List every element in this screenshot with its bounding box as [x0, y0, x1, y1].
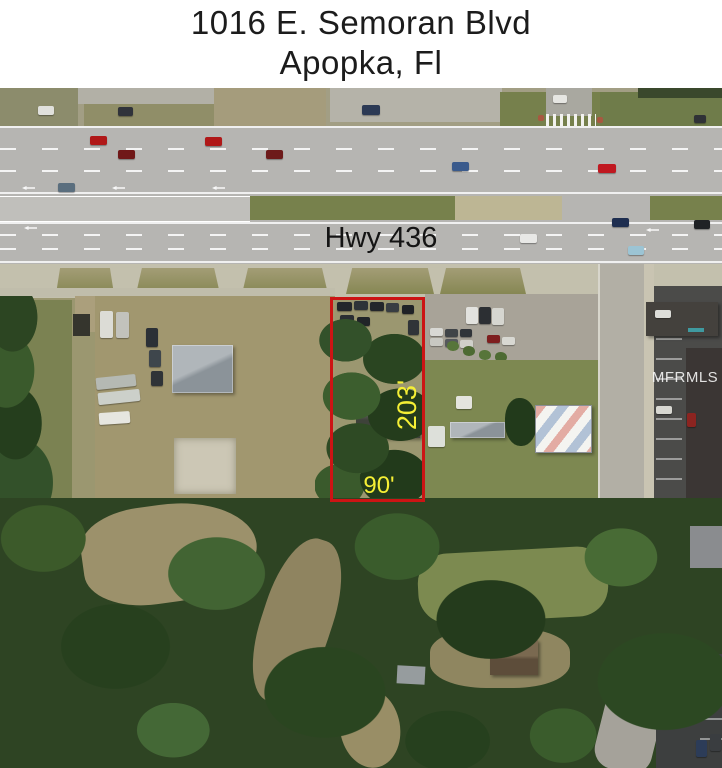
lane-arrow	[24, 226, 37, 230]
car	[520, 234, 537, 243]
dirt-patch	[214, 88, 326, 126]
mls-watermark: MFRMLS	[648, 369, 722, 386]
lane-arrow	[646, 228, 659, 232]
palm-tree	[463, 346, 475, 356]
concrete-median	[0, 196, 250, 222]
car	[118, 107, 133, 116]
parking-stripes	[656, 328, 682, 518]
car	[58, 183, 75, 192]
car	[266, 150, 283, 159]
car	[118, 150, 135, 159]
car	[460, 329, 472, 337]
car	[687, 413, 696, 427]
box-truck	[116, 312, 129, 338]
tarp	[73, 314, 90, 336]
forest-canopy	[0, 498, 722, 768]
car	[362, 105, 380, 115]
pickup-truck	[456, 396, 472, 409]
lane-arrow	[22, 186, 35, 190]
lane-line	[0, 148, 722, 150]
driveway	[330, 88, 502, 122]
car	[598, 164, 616, 173]
car	[38, 106, 54, 115]
tree-line-west	[0, 296, 62, 508]
grass-island	[440, 268, 526, 294]
curb-ramp	[597, 117, 603, 123]
tree	[505, 398, 537, 446]
metal-roof-building	[172, 345, 233, 393]
car	[502, 337, 515, 345]
car	[430, 338, 443, 346]
car	[151, 371, 163, 386]
car	[655, 310, 671, 318]
palm-tree	[447, 341, 459, 351]
grass-patch	[84, 104, 214, 126]
building-roof	[646, 302, 718, 336]
lane-arrow	[212, 186, 225, 190]
carport	[450, 422, 505, 438]
lane-line	[0, 192, 722, 194]
van	[99, 411, 131, 425]
curb-ramp	[538, 115, 544, 121]
box-truck	[492, 308, 504, 325]
car	[445, 329, 458, 337]
property-address-line2: Apopka, Fl	[280, 43, 443, 83]
car	[452, 162, 469, 171]
parcel-width-label: 90'	[350, 472, 408, 500]
car	[553, 95, 567, 103]
car	[149, 350, 161, 367]
highway: Hwy 436	[0, 126, 722, 264]
parcel-depth-label: 203'	[378, 376, 436, 434]
grass-median	[650, 196, 722, 220]
car	[612, 218, 629, 227]
lane-line	[0, 126, 722, 128]
teal-awning	[688, 328, 704, 332]
car	[694, 115, 706, 123]
palm-tree	[479, 350, 491, 360]
car	[628, 246, 644, 255]
sidewalk	[644, 264, 654, 510]
driveway	[78, 88, 218, 104]
listing-photo-page: 1016 E. Semoran Blvd Apopka, Fl	[0, 0, 722, 768]
highway-label: Hwy 436	[306, 222, 456, 260]
concrete-pad	[174, 438, 236, 494]
grass-island	[346, 268, 434, 294]
flag-roof-building	[535, 405, 592, 453]
car	[146, 328, 158, 347]
box-truck	[466, 307, 478, 324]
turn-lane-taper	[455, 196, 562, 220]
box-truck	[479, 307, 491, 324]
forest	[0, 498, 722, 768]
lane-line	[0, 261, 722, 263]
title-block: 1016 E. Semoran Blvd Apopka, Fl	[0, 0, 722, 88]
property-address-line1: 1016 E. Semoran Blvd	[191, 3, 531, 43]
car	[694, 220, 710, 229]
car	[430, 328, 443, 336]
hedge	[638, 88, 722, 98]
car	[487, 335, 500, 343]
median-crossing	[562, 196, 650, 220]
car	[656, 406, 672, 414]
car	[205, 137, 222, 146]
north-verge	[0, 88, 722, 126]
car	[90, 136, 107, 145]
lane-arrow	[112, 186, 125, 190]
side-street	[598, 264, 646, 520]
box-truck	[100, 311, 113, 338]
aerial-photo: Hwy 436	[0, 88, 722, 768]
crosswalk	[546, 114, 596, 126]
